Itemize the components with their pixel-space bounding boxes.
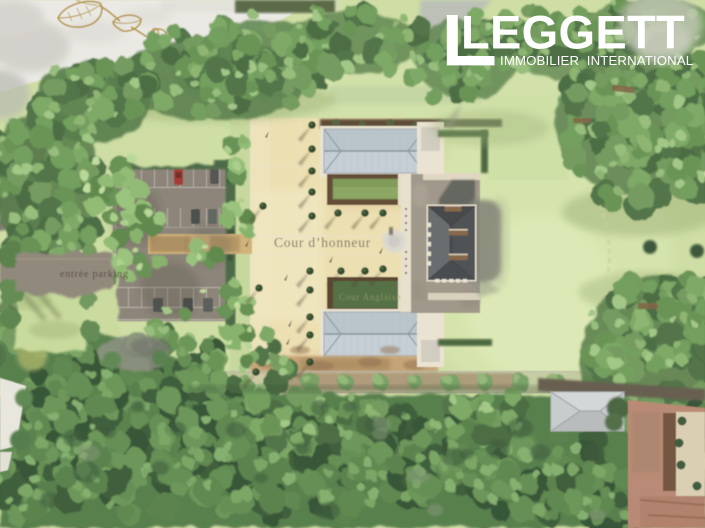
svg-text:Cour d’honneur: Cour d’honneur — [274, 235, 371, 250]
svg-text:Cour Anglaise: Cour Anglaise — [339, 292, 401, 302]
svg-text:IMMOBILIER INTERNATIONAL: IMMOBILIER INTERNATIONAL — [500, 53, 693, 68]
svg-text:LEGGETT: LEGGETT — [461, 6, 685, 59]
svg-text:entrée parking: entrée parking — [60, 269, 129, 280]
